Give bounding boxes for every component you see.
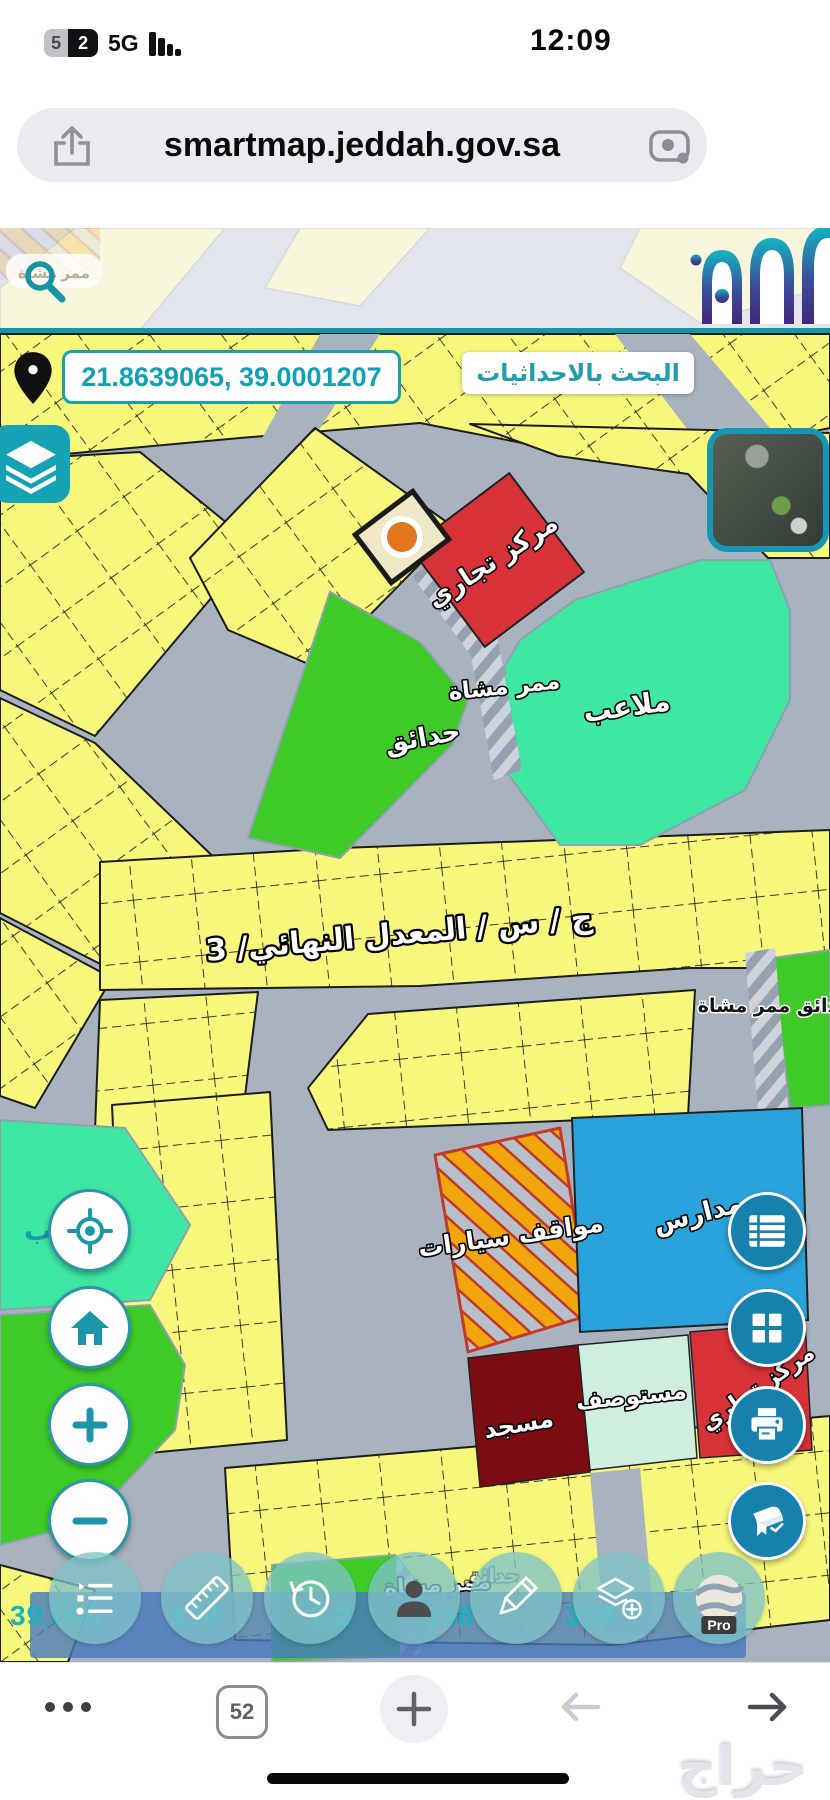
minus-icon [70, 1501, 110, 1541]
search-by-coordinates-button[interactable]: البحث بالاحداثيات [462, 352, 694, 394]
table-button[interactable] [728, 1192, 806, 1270]
battery-icon: 5 2 [44, 29, 98, 57]
profile-button[interactable] [368, 1552, 460, 1644]
label-parks-pedestrian: حدائق ممر مشاة [698, 995, 830, 1017]
table-icon [744, 1210, 790, 1252]
locate-icon [67, 1208, 113, 1254]
locate-button[interactable] [48, 1189, 131, 1272]
print-button[interactable] [728, 1386, 806, 1464]
ruler-icon [181, 1572, 233, 1624]
layers-icon [1, 434, 61, 494]
url-field[interactable]: smartmap.jeddah.gov.sa [17, 108, 707, 182]
menu-button[interactable] [44, 1701, 100, 1713]
person-icon [390, 1574, 438, 1622]
zoom-in-button[interactable] [48, 1383, 131, 1466]
plus-icon [70, 1405, 110, 1445]
battery-digit: 2 [68, 29, 98, 57]
tabs-button[interactable]: 52 [216, 1685, 268, 1739]
home-icon [68, 1308, 112, 1348]
phone-screen: 5 2 5G 12:09 smartmap.jeddah.gov.sa [0, 0, 830, 1800]
browser-toolbar: 52 حراج [0, 1662, 830, 1800]
forward-button[interactable] [744, 1685, 792, 1729]
back-button[interactable] [556, 1685, 604, 1729]
search-by-coordinates-label: البحث بالاحداثيات [476, 359, 680, 388]
network-type-label: 5G [108, 30, 139, 57]
book-icon [744, 1499, 790, 1543]
grid-icon [746, 1307, 788, 1349]
book-button[interactable] [728, 1482, 806, 1560]
map-canvas[interactable]: ممر مشاة [0, 228, 830, 1662]
tab-count: 52 [230, 1699, 254, 1725]
add-layers-button[interactable] [573, 1552, 665, 1644]
zoom-out-button[interactable] [48, 1479, 131, 1562]
status-bar: 5 2 5G 12:09 [0, 0, 830, 96]
new-tab-button[interactable] [380, 1675, 448, 1743]
plus-icon [395, 1690, 433, 1728]
layers-button[interactable] [0, 425, 70, 503]
home-button[interactable] [48, 1286, 131, 1369]
list-icon [70, 1576, 120, 1620]
signal-bars-icon [149, 28, 183, 58]
pencil-icon [491, 1573, 541, 1623]
pro-badge: Pro [701, 1616, 736, 1634]
history-button[interactable] [264, 1552, 356, 1644]
measure-button[interactable] [161, 1552, 253, 1644]
clock: 12:09 [530, 24, 640, 58]
watermark: حراج [678, 1735, 808, 1798]
camera-scan-icon[interactable] [647, 123, 693, 169]
legend-list-button[interactable] [49, 1552, 141, 1644]
printer-icon [745, 1404, 789, 1446]
add-layers-icon [593, 1573, 645, 1623]
coordinates-input[interactable]: 21.8639065, 39.0001207 [62, 350, 401, 404]
satellite-basemap-thumbnail[interactable] [707, 428, 829, 552]
url-text[interactable]: smartmap.jeddah.gov.sa [17, 126, 707, 165]
home-indicator[interactable] [267, 1773, 569, 1784]
battery-digit: 5 [44, 29, 68, 57]
location-pin-icon [12, 350, 54, 406]
grid-button[interactable] [728, 1289, 806, 1367]
browser-address-bar: smartmap.jeddah.gov.sa [0, 96, 830, 228]
earth-pro-button[interactable]: Pro [673, 1552, 765, 1644]
draw-button[interactable] [470, 1552, 562, 1644]
coordinates-value: 21.8639065, 39.0001207 [81, 362, 381, 393]
history-clock-icon [285, 1573, 335, 1623]
